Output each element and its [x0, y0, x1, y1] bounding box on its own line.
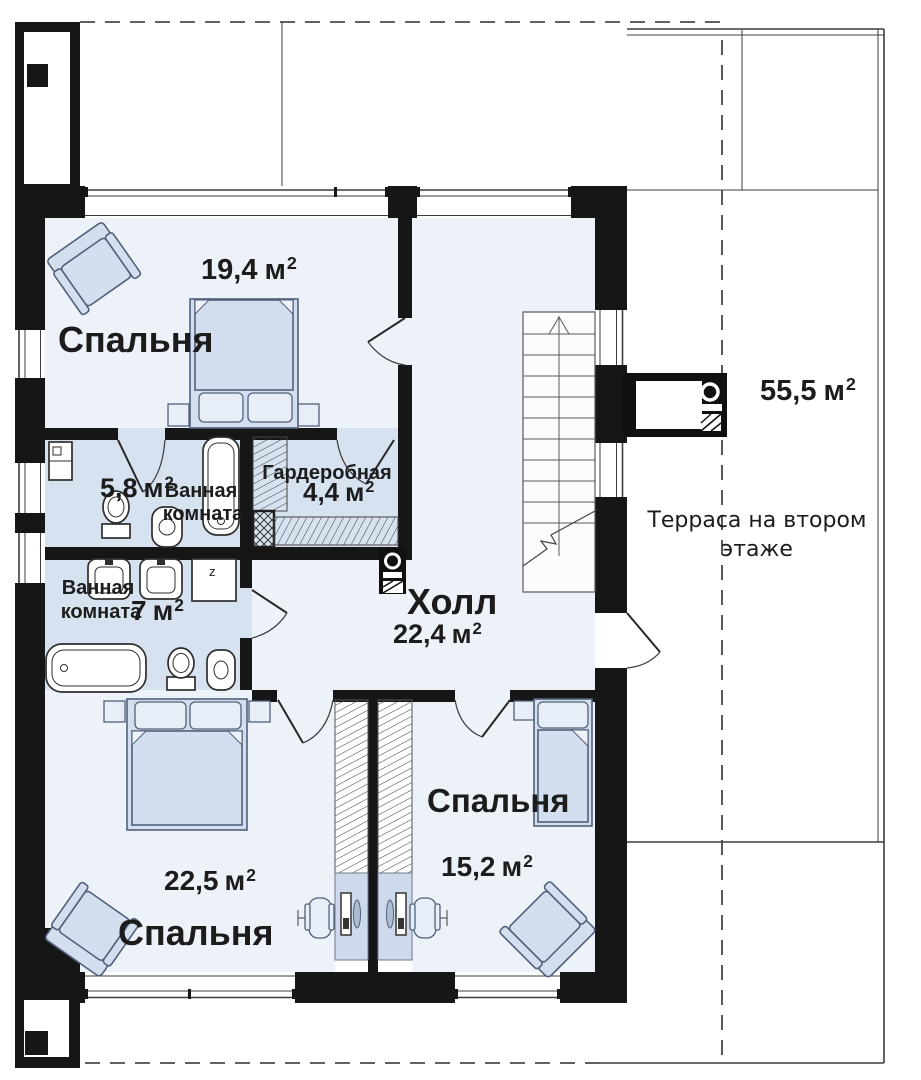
- window-right-stairs-upper: [595, 310, 627, 365]
- window-right-stairs-lower: [595, 443, 627, 497]
- firebox-icon: [636, 381, 702, 429]
- bedroom1-door-gap-floor: [398, 318, 412, 365]
- bedroom1-name-label: Спальня: [58, 319, 214, 360]
- door-terrace: [627, 613, 660, 668]
- nightstand: [249, 701, 270, 722]
- window-bottom-bedroom3: [455, 972, 560, 1003]
- double-bed-bedroom2: [104, 699, 270, 830]
- nightstand: [514, 701, 534, 720]
- window-left-bathroom2: [15, 533, 45, 583]
- shelf-unit-icon: [253, 511, 274, 547]
- terrace-door-opening: [595, 613, 627, 668]
- bathroom1-name-line1: Ванная: [165, 480, 238, 502]
- vent-slot-icon: [383, 572, 402, 578]
- wardrobe-strip-bedroom2: [335, 700, 368, 873]
- washing-machine-icon: z: [192, 559, 236, 601]
- bedroom3-area-label: 15,2м2: [441, 851, 533, 882]
- sink-icon: [140, 559, 182, 599]
- window-top-bedroom1: [85, 186, 388, 218]
- bathroom1-name-line2: комната: [163, 503, 244, 525]
- desk-bedroom3: [378, 873, 412, 960]
- wardrobe-area-label: 4,4м2: [303, 477, 374, 507]
- nightstand: [104, 701, 125, 722]
- bedroom2-name-label: Спальня: [118, 912, 274, 953]
- window-left-bedroom1: [15, 330, 45, 378]
- floor-plan-svg: z: [0, 0, 921, 1080]
- window-left-bathroom1: [15, 463, 45, 513]
- staircase: [523, 312, 595, 592]
- flue-icon: [27, 64, 48, 87]
- pillow: [190, 702, 241, 729]
- flue-icon: [25, 1031, 48, 1055]
- radiator-icon: [49, 442, 72, 480]
- bathroom2-name-line2: комната: [61, 601, 142, 623]
- terrace-area-label: 55,5м2: [760, 374, 856, 407]
- window-top-hall: [417, 186, 571, 218]
- pillow: [199, 393, 243, 422]
- pillow: [248, 393, 292, 422]
- terrace-name-line1: Терраса на втором: [646, 508, 866, 533]
- bedroom3-name-label: Спальня: [427, 782, 570, 819]
- clothes-rail-horizontal-icon: [274, 517, 398, 545]
- terrace-name-line2: этаже: [721, 537, 793, 562]
- chimney-top-left: [15, 22, 80, 218]
- bathtub-icon: [46, 644, 146, 692]
- pillow: [135, 702, 186, 729]
- hall-area-label: 22,4м2: [393, 619, 482, 649]
- wardrobe-strip-bedroom3: [378, 700, 412, 873]
- nightstand: [298, 404, 319, 426]
- bathroom2-name-line1: Ванная: [62, 577, 135, 599]
- bedroom2-area-label: 22,5м2: [164, 865, 256, 896]
- vent-shaft-unit-hall: [379, 548, 406, 594]
- nightstand: [168, 404, 189, 426]
- fireplace-unit-terrace: [623, 373, 727, 437]
- pillow: [538, 702, 588, 728]
- toilet-icon: [167, 648, 195, 690]
- hall-name-label: Холл: [407, 581, 497, 622]
- window-bottom-bedroom2: [85, 972, 295, 1003]
- washer-label: z: [209, 564, 216, 579]
- bathroom1-area-label: 5,8м2: [100, 473, 174, 503]
- vent-slot-icon: [700, 404, 722, 411]
- bidet-icon: [207, 650, 235, 690]
- bedroom1-area-label: 19,4м2: [201, 253, 297, 286]
